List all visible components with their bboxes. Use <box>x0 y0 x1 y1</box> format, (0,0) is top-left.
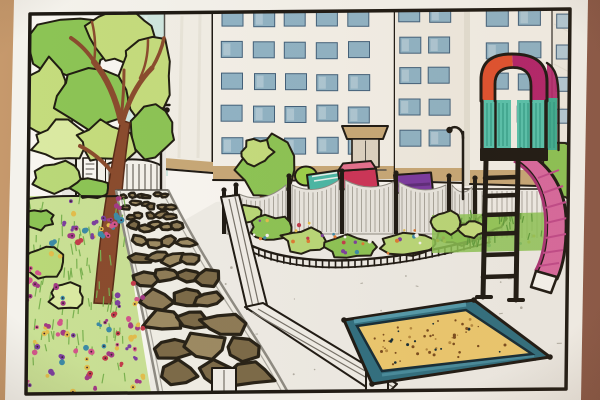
photo-of-drawing <box>0 0 600 400</box>
drawing-canvas <box>0 0 600 400</box>
photo-warm-cast <box>0 0 600 400</box>
